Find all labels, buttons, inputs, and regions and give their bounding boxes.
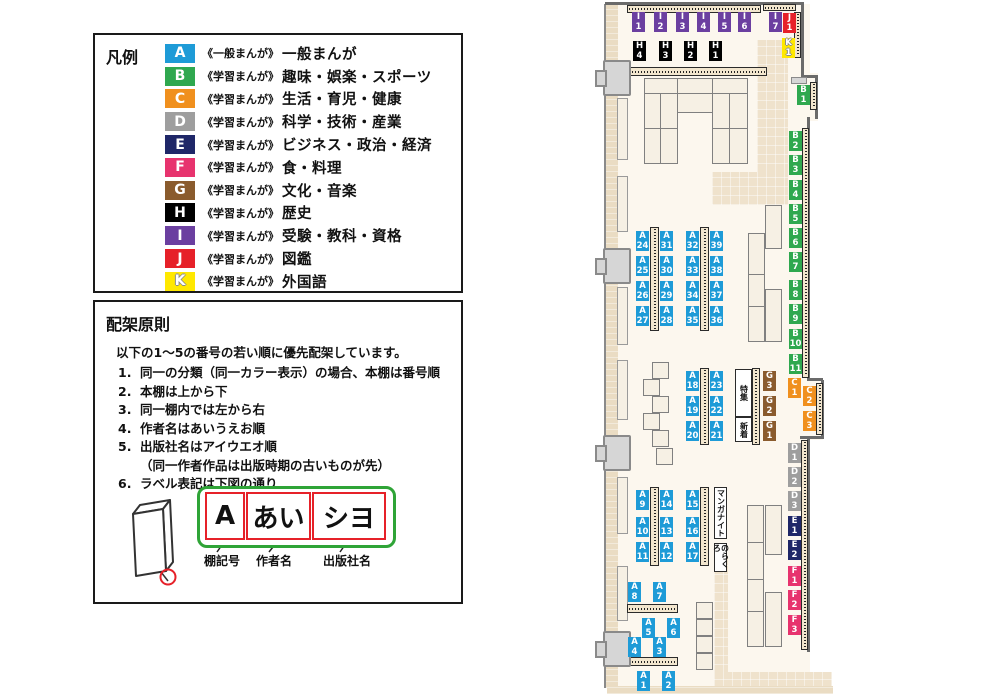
bookshelf-strip — [801, 440, 808, 650]
shelf-label-J1: J 1 — [783, 13, 796, 33]
shelf-label-A19: A 19 — [686, 396, 699, 416]
shelf-label-A4: A 4 — [628, 637, 641, 657]
legend-label: 一般まんが — [282, 43, 357, 64]
shelf-cell — [712, 128, 730, 164]
shelf-cell — [748, 233, 765, 275]
shelf-label-D2: D 2 — [788, 467, 801, 487]
shelf-label-A14: A 14 — [660, 490, 673, 510]
display-table — [696, 619, 713, 636]
door — [603, 435, 631, 471]
shelf-label-A1: A 1 — [637, 671, 650, 691]
shelf-label-A24: A 24 — [636, 231, 649, 251]
shelf-cell — [644, 78, 678, 94]
shelf-cell — [712, 78, 748, 94]
legend-series: 《一般まんが》 — [202, 45, 279, 61]
shelf-cell — [765, 505, 782, 555]
shelf-label-A25: A 25 — [636, 256, 649, 276]
shelf-label-F1: F 1 — [788, 566, 801, 586]
shelf-label-A32: A 32 — [686, 231, 699, 251]
caption-shelf-code: 棚記号 — [204, 552, 240, 569]
shelf-label-A22: A 22 — [710, 396, 723, 416]
display-table — [652, 396, 669, 413]
label-segment-publisher: シヨ — [312, 492, 386, 540]
legend-series: 《学習まんが》 — [202, 68, 279, 84]
shelf-label-A27: A 27 — [636, 306, 649, 326]
legend-chip-H: H — [165, 203, 195, 222]
display-table — [652, 430, 669, 447]
bookshelf-strip — [816, 383, 823, 435]
legend-series: 《学習まんが》 — [202, 137, 279, 153]
bookshelf-strip — [650, 487, 659, 566]
shelf-label-C1: C 1 — [788, 378, 801, 398]
shelf-label-A37: A 37 — [710, 281, 723, 301]
counter-step — [791, 77, 807, 84]
shelf-label-B1: B 1 — [797, 85, 810, 105]
shelf-label-A21: A 21 — [710, 421, 723, 441]
tiled-path-bottom-vert — [714, 556, 728, 674]
legend-label: 科学・技術・産業 — [282, 111, 402, 132]
legend-chip-I: I — [165, 226, 195, 245]
wall-shelf — [617, 176, 628, 232]
shelf-label-I7: I 7 — [769, 12, 782, 32]
display-table — [696, 602, 713, 619]
shelf-label-F3: F 3 — [788, 615, 801, 635]
wall-shelf — [617, 287, 628, 345]
legend-chip-F: F — [165, 158, 195, 177]
legend-chip-K: K — [165, 272, 195, 291]
shelf-label-I1: I 1 — [632, 12, 645, 32]
rule-4: 4.作者名はあいうえお順 — [118, 420, 440, 439]
map-annotation-新着: 新着 — [735, 417, 752, 442]
shelf-cell — [729, 93, 748, 129]
shelf-label-A23: A 23 — [710, 371, 723, 391]
bookshelf-strip — [627, 657, 678, 666]
legend-title: 凡例 — [106, 44, 138, 68]
shelf-label-C3: C 3 — [803, 411, 816, 431]
legend-row-E: E《学習まんが》ビジネス・政治・経済 — [165, 133, 432, 156]
wall-shelf — [617, 477, 628, 534]
shelf-label-I2: I 2 — [654, 12, 667, 32]
shelf-label-B7: B 7 — [789, 252, 802, 272]
shelf-cell — [712, 93, 730, 129]
door — [603, 60, 631, 96]
legend-label: 文化・音楽 — [282, 180, 357, 201]
legend-chip-C: C — [165, 89, 195, 108]
shelf-label-A30: A 30 — [660, 256, 673, 276]
shelf-label-A9: A 9 — [636, 490, 649, 510]
shelf-label-A29: A 29 — [660, 281, 673, 301]
right-wall-1 — [801, 2, 804, 78]
shelf-label-A26: A 26 — [636, 281, 649, 301]
shelf-label-A12: A 12 — [660, 542, 673, 562]
rule-text: 作者名はあいうえお順 — [140, 421, 265, 436]
left-wall — [604, 4, 618, 688]
rule-number: 5. — [118, 438, 140, 457]
display-table — [643, 413, 660, 430]
shelf-cell — [660, 93, 678, 129]
shelf-label-I4: I 4 — [697, 12, 710, 32]
legend-chip-G: G — [165, 181, 195, 200]
bookshelf-strip — [650, 227, 659, 331]
shelf-label-B2: B 2 — [789, 131, 802, 151]
shelf-label-A33: A 33 — [686, 256, 699, 276]
legend-chip-J: J — [165, 249, 195, 268]
shelf-label-I5: I 5 — [718, 12, 731, 32]
bookshelf-strip — [752, 368, 760, 445]
shelf-label-B11: B 11 — [789, 354, 802, 374]
legend-rows: A《一般まんが》一般まんがB《学習まんが》趣味・娯楽・スポーツC《学習まんが》生… — [165, 42, 432, 293]
legend-label: 受験・教科・資格 — [282, 225, 402, 246]
shelf-label-G1: G 1 — [763, 421, 776, 441]
shelf-label-A7: A 7 — [653, 582, 666, 602]
shelf-label-H2: H 2 — [684, 41, 697, 61]
shelf-cell — [747, 505, 764, 543]
shelf-label-H1: H 1 — [709, 41, 722, 61]
shelf-cell — [748, 306, 765, 342]
shelf-label-B10: B 10 — [789, 329, 802, 349]
shelf-label-A10: A 10 — [636, 517, 649, 537]
rule-number: 3. — [118, 401, 140, 420]
display-table — [643, 379, 660, 396]
tiled-path-mid — [712, 172, 788, 205]
shelf-label-A2: A 2 — [662, 671, 675, 691]
shelf-label-G3: G 3 — [763, 371, 776, 391]
rule-text: 同一棚内では左から右 — [140, 402, 265, 417]
shelf-cell — [765, 592, 782, 647]
legend-row-C: C《学習まんが》生活・育児・健康 — [165, 88, 432, 111]
right-wall-bump-bottom — [800, 436, 824, 439]
shelf-label-A39: A 39 — [710, 231, 723, 251]
shelf-label-H4: H 4 — [633, 41, 646, 61]
rule-number: 4. — [118, 420, 140, 439]
shelf-cell — [747, 611, 764, 647]
bookshelf-strip — [763, 4, 796, 11]
bookshelf-strip — [627, 67, 767, 76]
shelf-label-B3: B 3 — [789, 155, 802, 175]
shelf-label-I6: I 6 — [738, 12, 751, 32]
principles-rules: 1.同一の分類（同一カラー表示）の場合、本棚は番号順2.本棚は上から下3.同一棚… — [118, 364, 440, 494]
shelf-label-A13: A 13 — [660, 517, 673, 537]
legend-chip-E: E — [165, 135, 195, 154]
display-table — [696, 653, 713, 670]
legend-row-I: I《学習まんが》受験・教科・資格 — [165, 224, 432, 247]
shelf-label-A34: A 34 — [686, 281, 699, 301]
shelf-label-B5: B 5 — [789, 204, 802, 224]
wall-shelf — [617, 360, 628, 420]
rule-2: 2.本棚は上から下 — [118, 383, 440, 402]
legend-label: ビジネス・政治・経済 — [282, 134, 432, 155]
bookshelf-strip — [802, 128, 809, 378]
display-table — [656, 448, 673, 465]
shelf-cell — [677, 93, 713, 113]
shelf-label-K1: K 1 — [782, 38, 795, 58]
legend-row-J: J《学習まんが》図鑑 — [165, 247, 432, 270]
legend-row-D: D《学習まんが》科学・技術・産業 — [165, 110, 432, 133]
bookshelf-strip — [700, 368, 709, 445]
door — [603, 248, 631, 284]
bookshelf-strip — [810, 82, 817, 110]
legend-row-B: B《学習まんが》趣味・娯楽・スポーツ — [165, 65, 432, 88]
door — [603, 631, 631, 667]
rule-text: 出版社名はアイウエオ順 — [140, 439, 277, 454]
rule-note: （同一作者作品は出版時期の古いものが先） — [118, 457, 440, 476]
rule-number: 1. — [118, 364, 140, 383]
shelf-cell — [660, 128, 678, 164]
legend-label: 外国語 — [282, 271, 327, 292]
rule-number: 2. — [118, 383, 140, 402]
shelf-label-A3: A 3 — [653, 637, 666, 657]
legend-series: 《学習まんが》 — [202, 228, 279, 244]
legend-series: 《学習まんが》 — [202, 91, 279, 107]
rule-3: 3.同一棚内では左から右 — [118, 401, 440, 420]
shelf-label-B4: B 4 — [789, 180, 802, 200]
display-table — [696, 636, 713, 653]
rule-text: 本棚は上から下 — [140, 384, 228, 399]
map-annotation-マンガナイト: マンガナイト — [714, 487, 727, 539]
floor-map-page: 凡例 A《一般まんが》一般まんがB《学習まんが》趣味・娯楽・スポーツC《学習まん… — [0, 0, 1000, 700]
principles-intro: 以下の1～5の番号の若い順に優先配架しています。 — [116, 342, 407, 361]
legend-series: 《学習まんが》 — [202, 273, 279, 289]
legend-row-F: F《学習まんが》食・料理 — [165, 156, 432, 179]
wall-shelf — [617, 98, 628, 160]
legend-series: 《学習まんが》 — [202, 114, 279, 130]
label-segment-author: あい — [246, 492, 311, 540]
shelf-cell — [644, 128, 661, 164]
shelf-label-C2: C 2 — [803, 386, 816, 406]
shelf-label-A35: A 35 — [686, 306, 699, 326]
shelf-label-D3: D 3 — [788, 491, 801, 511]
map-annotation-特集: 特集 — [735, 369, 752, 417]
shelf-label-A18: A 18 — [686, 371, 699, 391]
principles-title: 配架原則 — [106, 311, 170, 335]
shelf-label-E1: E 1 — [788, 516, 801, 536]
legend-series: 《学習まんが》 — [202, 251, 279, 267]
shelf-cell — [748, 274, 765, 307]
label-position-circle — [161, 570, 176, 585]
rule-5: 5.出版社名はアイウエオ順 — [118, 438, 440, 457]
tiled-path-right-top — [757, 40, 788, 173]
bookshelf-strip — [627, 604, 678, 613]
legend-label: 趣味・娯楽・スポーツ — [282, 66, 432, 87]
shelf-label-G2: G 2 — [763, 396, 776, 416]
caption-publisher: 出版社名 — [323, 552, 371, 569]
shelf-label-A15: A 15 — [686, 490, 699, 510]
legend-chip-D: D — [165, 112, 195, 131]
shelf-label-F2: F 2 — [788, 590, 801, 610]
shelf-cell — [747, 579, 764, 612]
legend-series: 《学習まんが》 — [202, 159, 279, 175]
legend-series: 《学習まんが》 — [202, 182, 279, 198]
shelf-label-A28: A 28 — [660, 306, 673, 326]
shelf-cell — [644, 93, 661, 129]
legend-label: 図鑑 — [282, 248, 312, 269]
shelf-label-A8: A 8 — [628, 582, 641, 602]
legend-series: 《学習まんが》 — [202, 205, 279, 221]
shelf-label-I3: I 3 — [676, 12, 689, 32]
caption-author: 作者名 — [256, 552, 292, 569]
shelf-cell — [747, 542, 764, 580]
shelf-label-A5: A 5 — [642, 618, 655, 638]
shelf-cell — [765, 289, 782, 342]
shelf-label-A36: A 36 — [710, 306, 723, 326]
legend-label: 生活・育児・健康 — [282, 88, 402, 109]
shelf-cell — [729, 128, 748, 164]
shelf-label-D1: D 1 — [788, 443, 801, 463]
shelf-label-E2: E 2 — [788, 540, 801, 560]
shelf-label-B9: B 9 — [789, 304, 802, 324]
shelf-label-A17: A 17 — [686, 542, 699, 562]
legend-row-A: A《一般まんが》一般まんが — [165, 42, 432, 65]
legend-chip-B: B — [165, 67, 195, 86]
display-table — [652, 362, 669, 379]
legend-label: 食・料理 — [282, 157, 342, 178]
rule-1: 1.同一の分類（同一カラー表示）の場合、本棚は番号順 — [118, 364, 440, 383]
shelf-label-A38: A 38 — [710, 256, 723, 276]
legend-row-H: H《学習まんが》歴史 — [165, 202, 432, 225]
shelf-label-A16: A 16 — [686, 517, 699, 537]
label-segment-shelf-code: A — [205, 492, 245, 540]
shelf-label-A31: A 31 — [660, 231, 673, 251]
map-annotation-のらくろ: のらくろ — [714, 543, 727, 572]
legend-label: 歴史 — [282, 202, 312, 223]
rule-text: 同一の分類（同一カラー表示）の場合、本棚は番号順 — [140, 365, 440, 380]
bookshelf-strip — [700, 227, 709, 331]
shelf-cell — [677, 78, 713, 94]
bookshelf-strip — [700, 487, 709, 566]
shelf-label-H3: H 3 — [659, 41, 672, 61]
legend-chip-A: A — [165, 44, 195, 63]
shelf-cell — [765, 205, 782, 249]
shelf-label-B6: B 6 — [789, 228, 802, 248]
shelf-label-A20: A 20 — [686, 421, 699, 441]
shelf-label-A6: A 6 — [667, 618, 680, 638]
legend-row-K: K《学習まんが》外国語 — [165, 270, 432, 293]
legend-row-G: G《学習まんが》文化・音楽 — [165, 179, 432, 202]
legend-box: 凡例 A《一般まんが》一般まんがB《学習まんが》趣味・娯楽・スポーツC《学習まん… — [93, 33, 463, 293]
shelf-label-B8: B 8 — [789, 280, 802, 300]
shelf-label-A11: A 11 — [636, 542, 649, 562]
